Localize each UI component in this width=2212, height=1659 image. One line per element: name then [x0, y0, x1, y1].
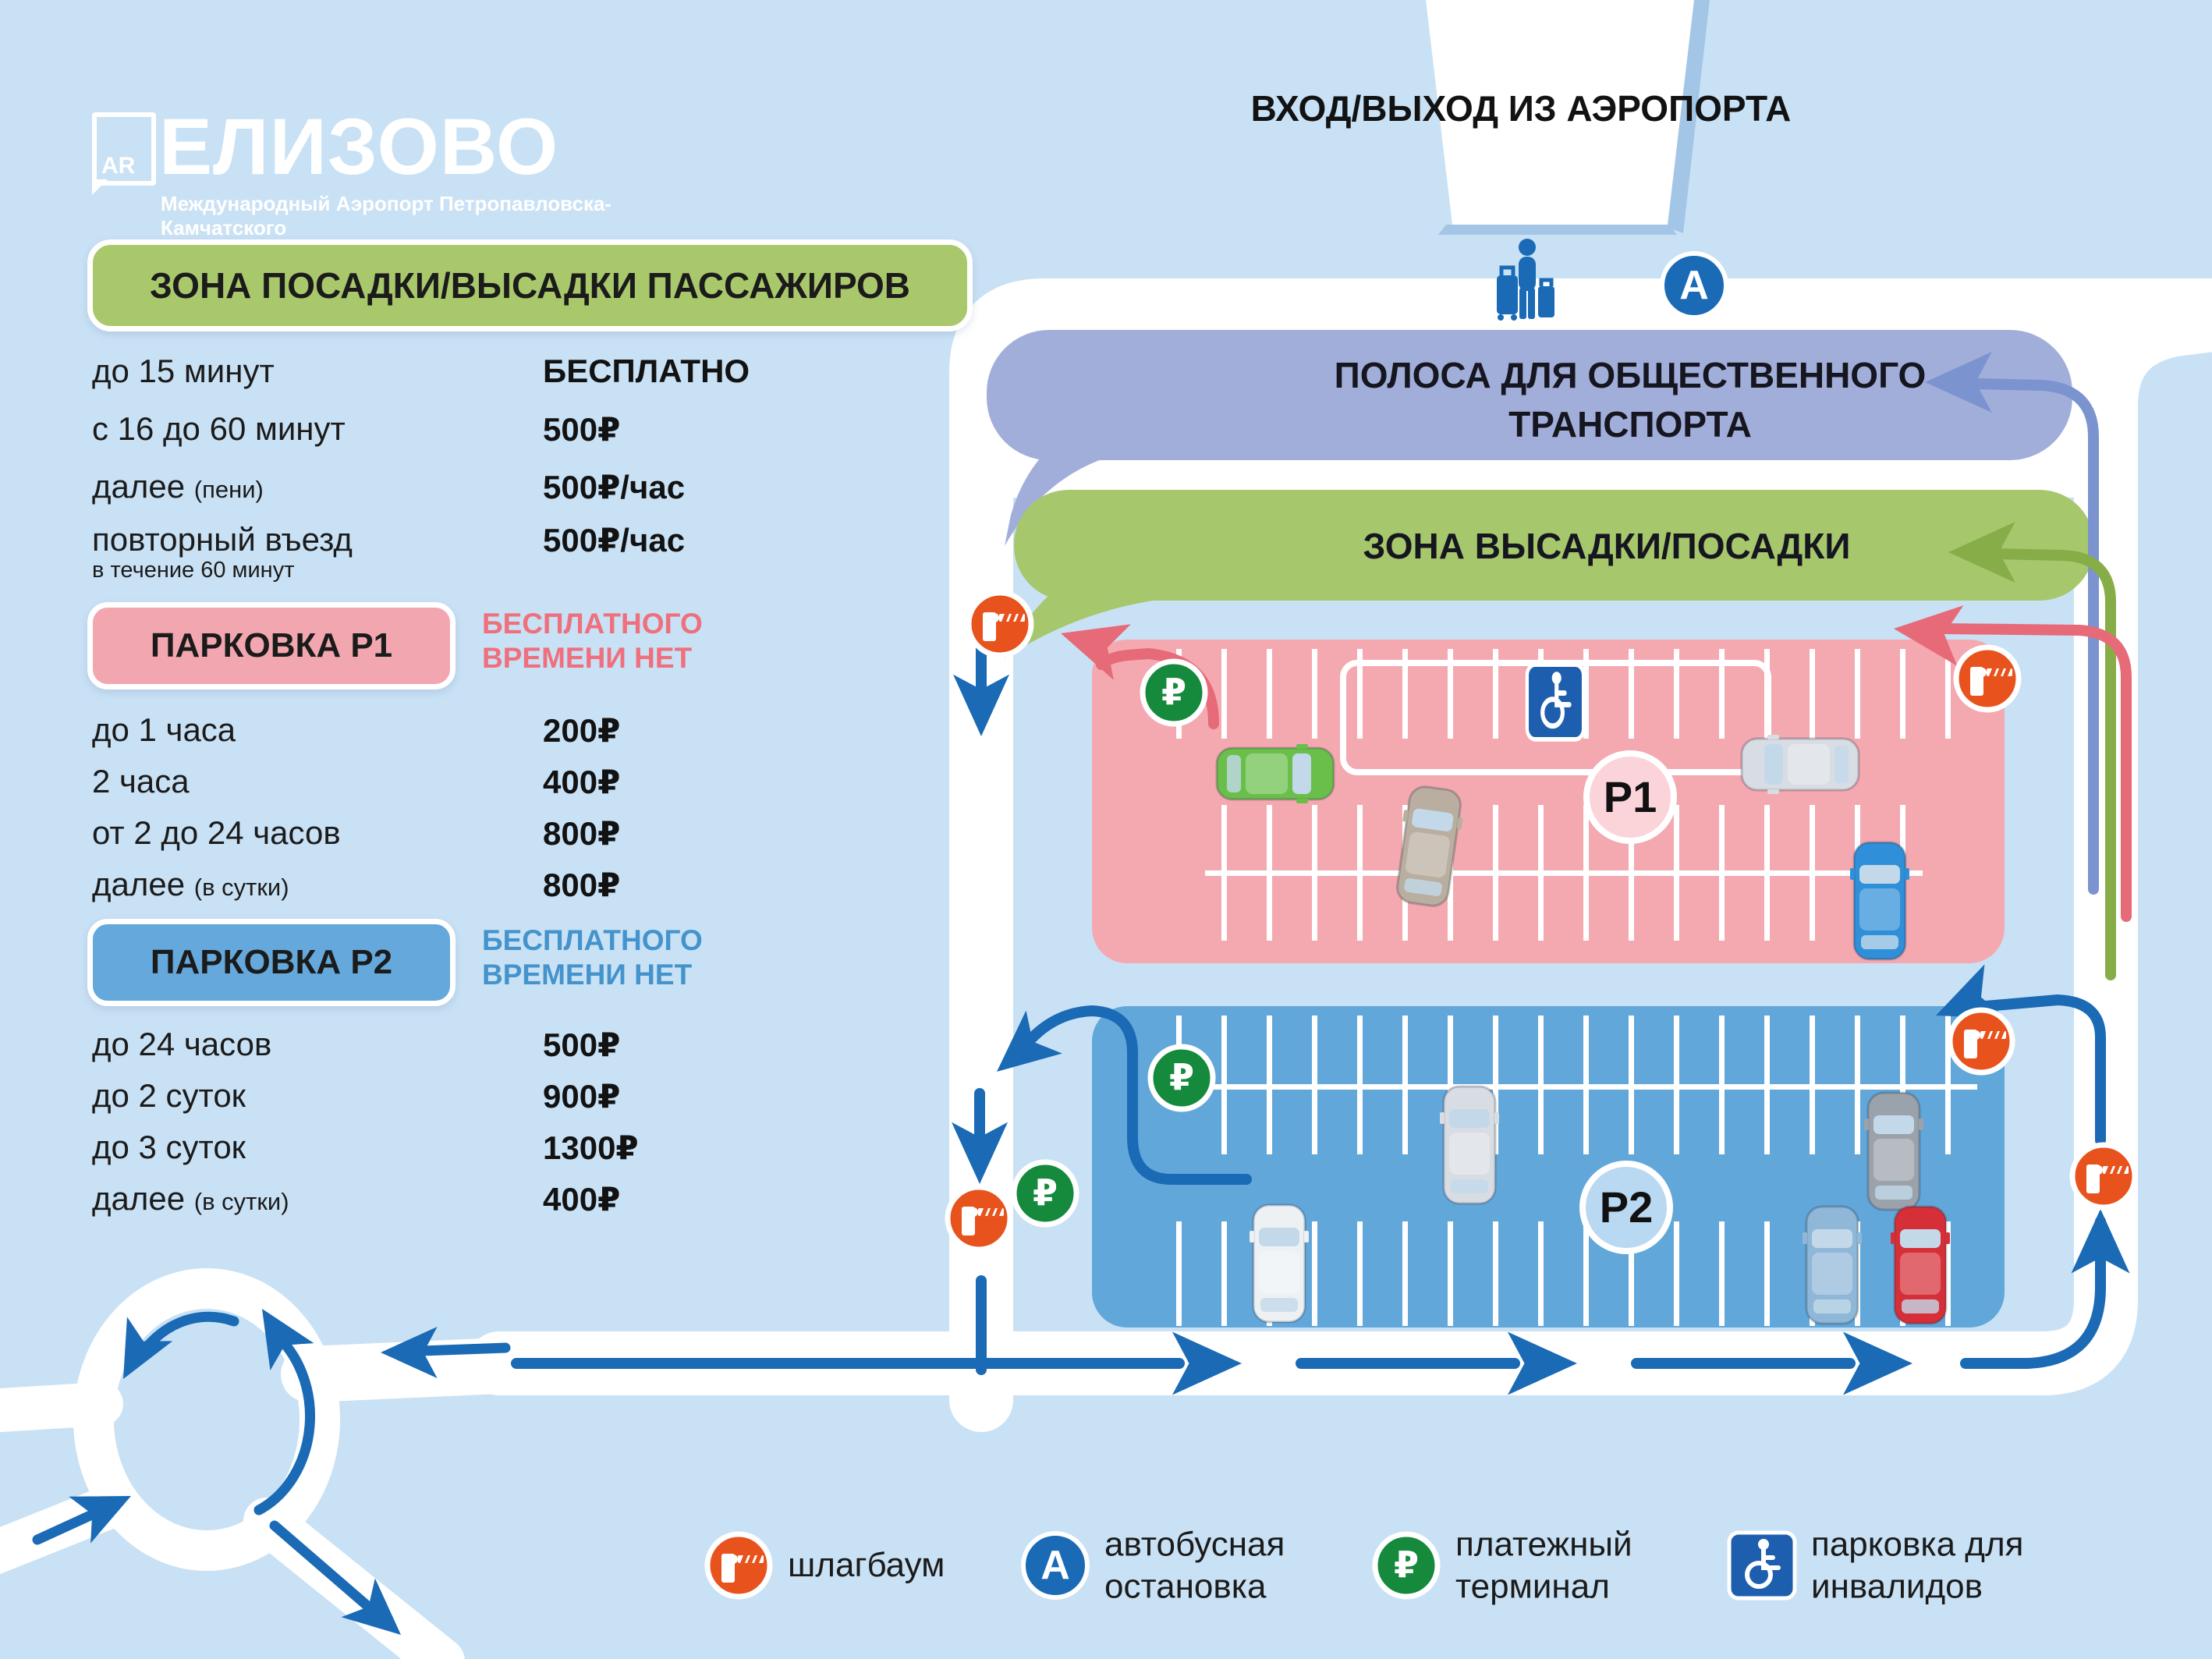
bus-lane-label-line1: ПОЛОСА ДЛЯ ОБЩЕСТВЕННОГО	[1335, 355, 1927, 395]
logo-mark: AR	[92, 112, 156, 186]
price-row: до 2 суток 900₽	[92, 1077, 981, 1116]
price-row: от 2 до 24 часов 800₽	[92, 814, 981, 853]
barrier-icon	[2072, 1145, 2135, 1207]
price-value: 900₽	[543, 1077, 620, 1115]
legend-label: парковка для инвалидов	[1811, 1523, 2068, 1607]
price-label: с 16 до 60 минут	[92, 410, 346, 447]
price-row: далее (в сутки) 400₽	[92, 1180, 981, 1219]
price-value: 800₽	[543, 866, 620, 904]
barrier-icon	[1950, 1010, 2012, 1072]
price-value: 400₽	[543, 1180, 620, 1218]
parking-row-line	[1213, 1084, 1977, 1090]
logo-notch	[92, 179, 108, 195]
barrier-icon	[1956, 647, 2019, 710]
parking-infographic: { "logo": { "code": "AR", "name": "ЕЛИЗО…	[0, 0, 2212, 1659]
legend-item-disabled-parking: парковка для инвалидов	[1727, 1530, 2054, 1601]
westbound-entry-arrow-path	[421, 1348, 505, 1351]
bus-stop-icon	[1662, 253, 1726, 317]
price-row: до 24 часов 500₽	[92, 1026, 981, 1065]
price-row: до 3 суток 1300₽	[92, 1129, 981, 1168]
payment-terminal-icon	[1150, 1047, 1213, 1109]
price-label: далее	[92, 1180, 185, 1217]
price-label: до 15 минут	[92, 353, 275, 389]
p2-pricing-title: ПАРКОВКА P2	[87, 919, 456, 1006]
disabled-parking-sign	[1527, 665, 1583, 739]
parking-p2-area: P2	[1092, 1006, 2005, 1328]
parking-p1-area: P1	[1092, 640, 2005, 963]
car-silver	[1440, 1087, 1499, 1203]
price-note: (пени)	[194, 476, 264, 503]
p1-pricing-title: ПАРКОВКА P1	[87, 602, 456, 689]
car-gray	[1864, 1093, 1923, 1210]
payment-terminal-icon	[1371, 1530, 1441, 1601]
price-value: 500₽	[543, 410, 620, 448]
price-label: до 24 часов	[92, 1026, 271, 1062]
dropoff-pricing-title: ЗОНА ПОСАДКИ/ВЫСАДКИ ПАССАЖИРОВ	[87, 239, 973, 331]
car-white-van	[1250, 1205, 1309, 1322]
car-lightblue	[1803, 1207, 1862, 1324]
price-note: (в сутки)	[194, 1188, 289, 1215]
bus-lane-label-line2: ТРАНСПОРТА	[1508, 404, 1752, 445]
car-green	[1217, 744, 1334, 803]
price-row: с 16 до 60 минут 500₽	[92, 410, 981, 449]
p1-badge-label: P1	[1604, 772, 1657, 821]
barrier-icon	[704, 1530, 774, 1601]
p2-badge-label: P2	[1600, 1182, 1654, 1232]
terminal-shadow-bottom	[1438, 225, 1677, 235]
legend-label: платежный терминал	[1455, 1523, 1713, 1607]
airport-logo: AR ЕЛИЗОВО Международный Аэропорт Петроп…	[92, 101, 638, 226]
legend-label: шлагбаум	[788, 1544, 1045, 1586]
car-blue	[1850, 842, 1909, 959]
price-label: до 3 суток	[92, 1129, 246, 1165]
payment-terminal-icon	[1143, 661, 1205, 724]
legend-item-bus-stop: автобусная остановка	[1020, 1530, 1348, 1601]
price-value: 500₽/час	[543, 521, 685, 559]
price-row: далее (пени) 500₽/час	[92, 468, 981, 507]
barrier-icon	[969, 593, 1031, 655]
price-label: от 2 до 24 часов	[92, 814, 341, 851]
price-value: 500₽/час	[543, 468, 685, 506]
price-row: повторный въезд в течение 60 минут 500₽/…	[92, 521, 981, 560]
parking-stripes	[1154, 1016, 1983, 1087]
legend-label: автобусная остановка	[1104, 1523, 1362, 1607]
price-label: до 1 часа	[92, 711, 236, 748]
car-red	[1891, 1207, 1950, 1324]
price-row: до 1 часа 200₽	[92, 711, 981, 750]
parking-stripes	[1205, 875, 1923, 941]
price-label: повторный въезд	[92, 521, 353, 558]
logo-code: AR	[101, 153, 135, 179]
disabled-parking-icon	[1727, 1530, 1797, 1601]
passenger-icon	[1497, 239, 1554, 321]
price-label: далее	[92, 866, 185, 902]
price-value: 500₽	[543, 1026, 620, 1064]
parking-row-line	[1205, 870, 1923, 876]
price-row: далее (в сутки) 800₽	[92, 866, 981, 905]
price-sublabel: в течение 60 минут	[92, 558, 294, 583]
bus-stop-icon	[1020, 1530, 1090, 1601]
p1-free-note: БЕСПЛАТНОГО ВРЕМЕНИ НЕТ	[482, 607, 778, 675]
price-value: 200₽	[543, 711, 620, 750]
price-note: (в сутки)	[194, 874, 289, 901]
parking-stripes	[1213, 1089, 1977, 1154]
price-value: 400₽	[543, 763, 620, 801]
parking-stripes	[1205, 805, 1923, 874]
airport-subtitle: Международный Аэропорт Петропавловска-Ка…	[161, 192, 638, 240]
price-value: 800₽	[543, 814, 620, 853]
airport-name: ЕЛИЗОВО	[159, 101, 558, 193]
dropoff-zone-label: ЗОНА ВЫСАДКИ/ПОСАДКИ	[1363, 526, 1851, 566]
price-row: до 15 минут БЕСПЛАТНО	[92, 353, 981, 392]
price-label: 2 часа	[92, 763, 190, 799]
price-label: далее	[92, 468, 185, 505]
entrance-label: ВХОД/ВЫХОД ИЗ АЭРОПОРТА	[1251, 88, 1792, 129]
price-value: БЕСПЛАТНО	[543, 353, 750, 390]
payment-terminal-icon	[1014, 1162, 1076, 1225]
price-value: 1300₽	[543, 1129, 639, 1167]
p2-free-note: БЕСПЛАТНОГО ВРЕМЕНИ НЕТ	[482, 923, 778, 991]
price-label: до 2 суток	[92, 1077, 246, 1114]
legend-item-barrier: шлагбаум	[704, 1530, 953, 1601]
price-row: 2 часа 400₽	[92, 763, 981, 802]
car-silver	[1742, 735, 1859, 794]
legend-item-payment-terminal: платежный терминал	[1371, 1530, 1683, 1601]
